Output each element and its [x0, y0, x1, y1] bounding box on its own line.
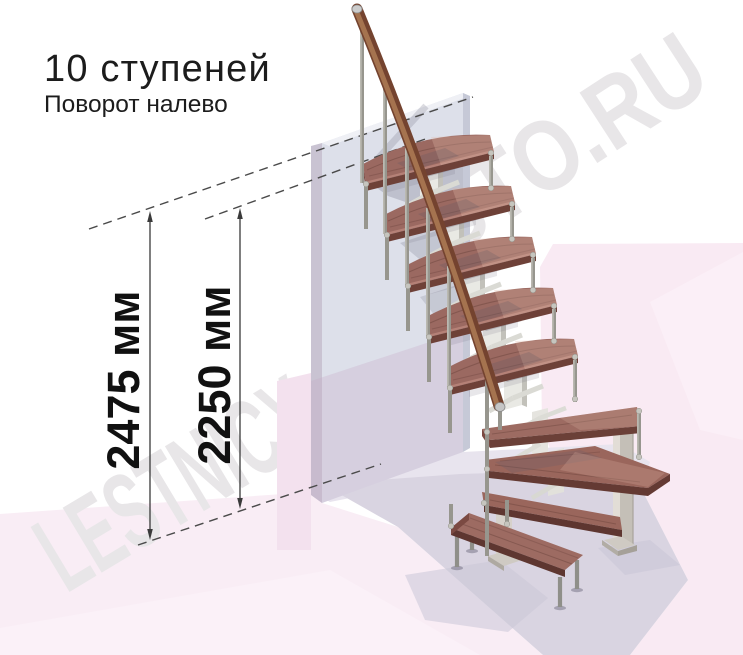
svg-text:2475 мм: 2475 мм	[98, 290, 149, 469]
svg-text:10 ступеней: 10 ступеней	[44, 48, 271, 90]
svg-text:2250 мм: 2250 мм	[189, 285, 240, 464]
svg-text:Поворот налево: Поворот налево	[44, 91, 228, 118]
